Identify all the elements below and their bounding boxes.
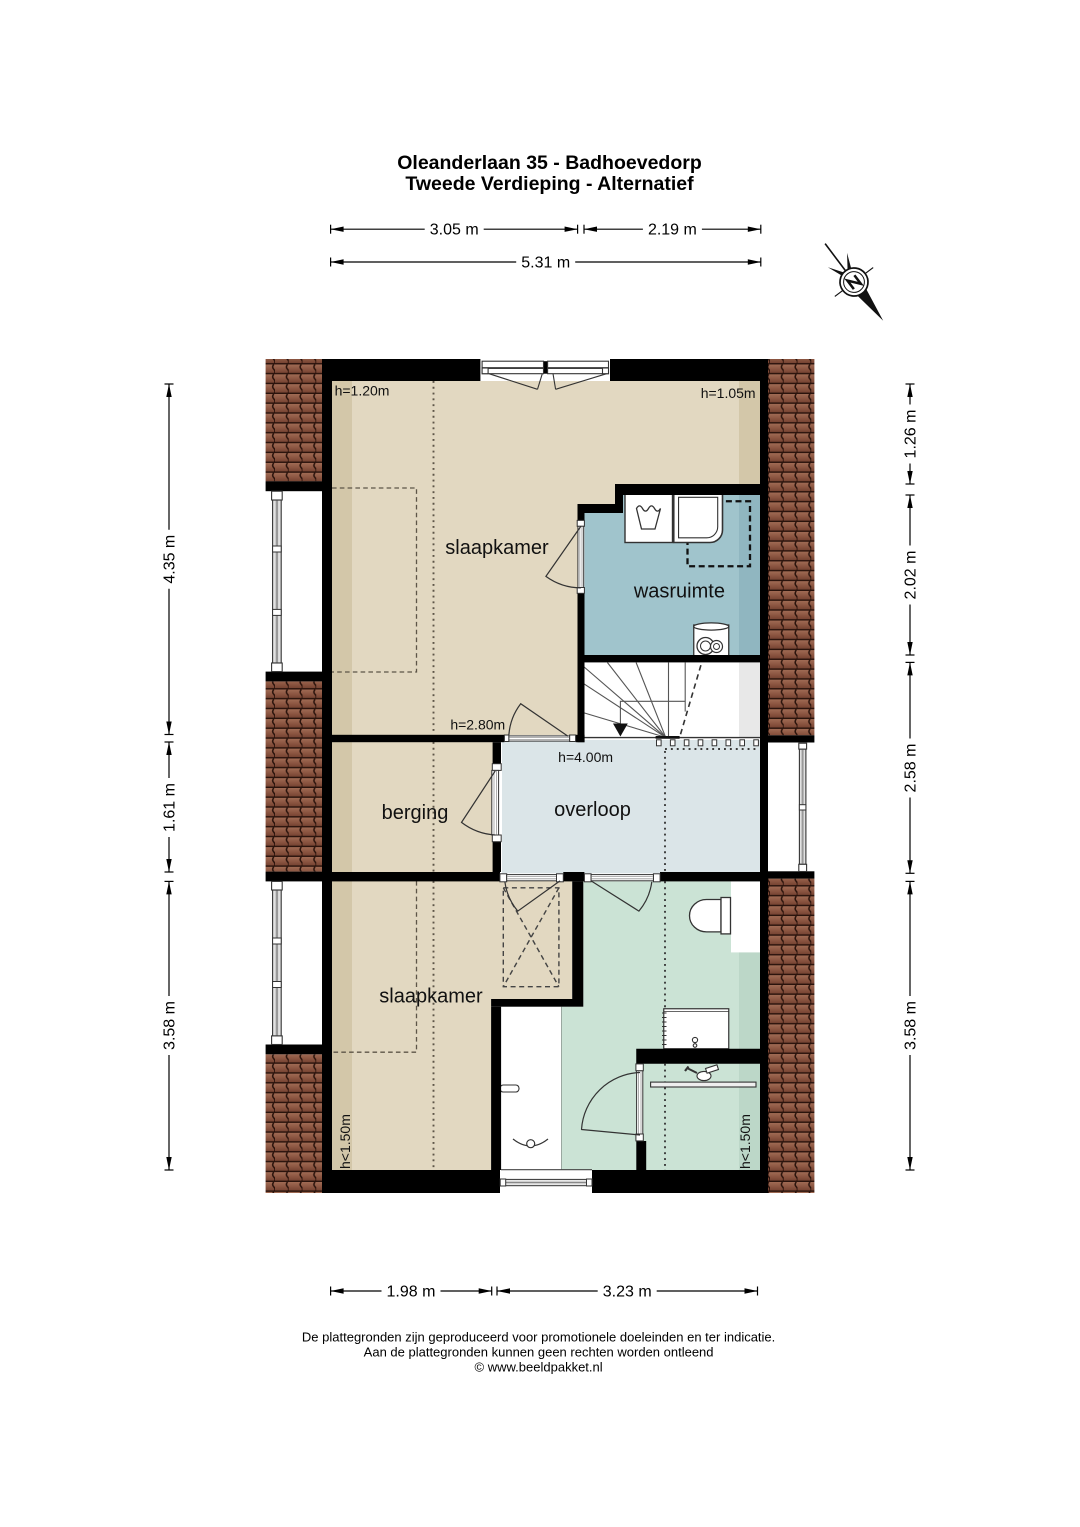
svg-text:h=2.80m: h=2.80m — [450, 717, 505, 733]
svg-text:2.58 m: 2.58 m — [902, 744, 919, 793]
svg-text:3.58 m: 3.58 m — [161, 1001, 178, 1050]
svg-text:1.98 m: 1.98 m — [387, 1283, 436, 1300]
svg-text:2.02 m: 2.02 m — [902, 551, 919, 600]
svg-text:slaapkamer: slaapkamer — [445, 537, 549, 559]
svg-text:3.05 m: 3.05 m — [430, 222, 479, 239]
svg-text:h=1.05m: h=1.05m — [701, 385, 756, 401]
svg-text:Oleanderlaan 35 - Badhoevedorp: Oleanderlaan 35 - Badhoevedorp — [397, 152, 702, 174]
svg-text:3.58 m: 3.58 m — [902, 1001, 919, 1050]
svg-text:Aan de plattegronden kunnen ge: Aan de plattegronden kunnen geen rechten… — [364, 1345, 714, 1360]
svg-text:h<1.50m: h<1.50m — [737, 1114, 753, 1169]
svg-text:berging: berging — [382, 802, 449, 824]
svg-text:h=1.20m: h=1.20m — [335, 383, 390, 399]
svg-text:© www.beeldpakket.nl: © www.beeldpakket.nl — [475, 1360, 603, 1375]
svg-text:h<1.50m: h<1.50m — [337, 1114, 353, 1169]
svg-text:h=4.00m: h=4.00m — [558, 749, 613, 765]
svg-text:2.19 m: 2.19 m — [648, 222, 697, 239]
svg-text:4.35 m: 4.35 m — [161, 535, 178, 584]
svg-text:Tweede Verdieping - Alternatie: Tweede Verdieping - Alternatief — [405, 173, 694, 195]
svg-text:slaapkamer: slaapkamer — [379, 986, 483, 1008]
svg-text:3.23 m: 3.23 m — [603, 1283, 652, 1300]
svg-text:wasruimte: wasruimte — [633, 581, 725, 603]
svg-text:1.26 m: 1.26 m — [902, 410, 919, 459]
svg-text:1.61 m: 1.61 m — [161, 783, 178, 832]
svg-text:5.31 m: 5.31 m — [521, 254, 570, 271]
svg-text:De plattegronden zijn geproduc: De plattegronden zijn geproduceerd voor … — [302, 1330, 775, 1345]
svg-text:overloop: overloop — [554, 799, 631, 821]
